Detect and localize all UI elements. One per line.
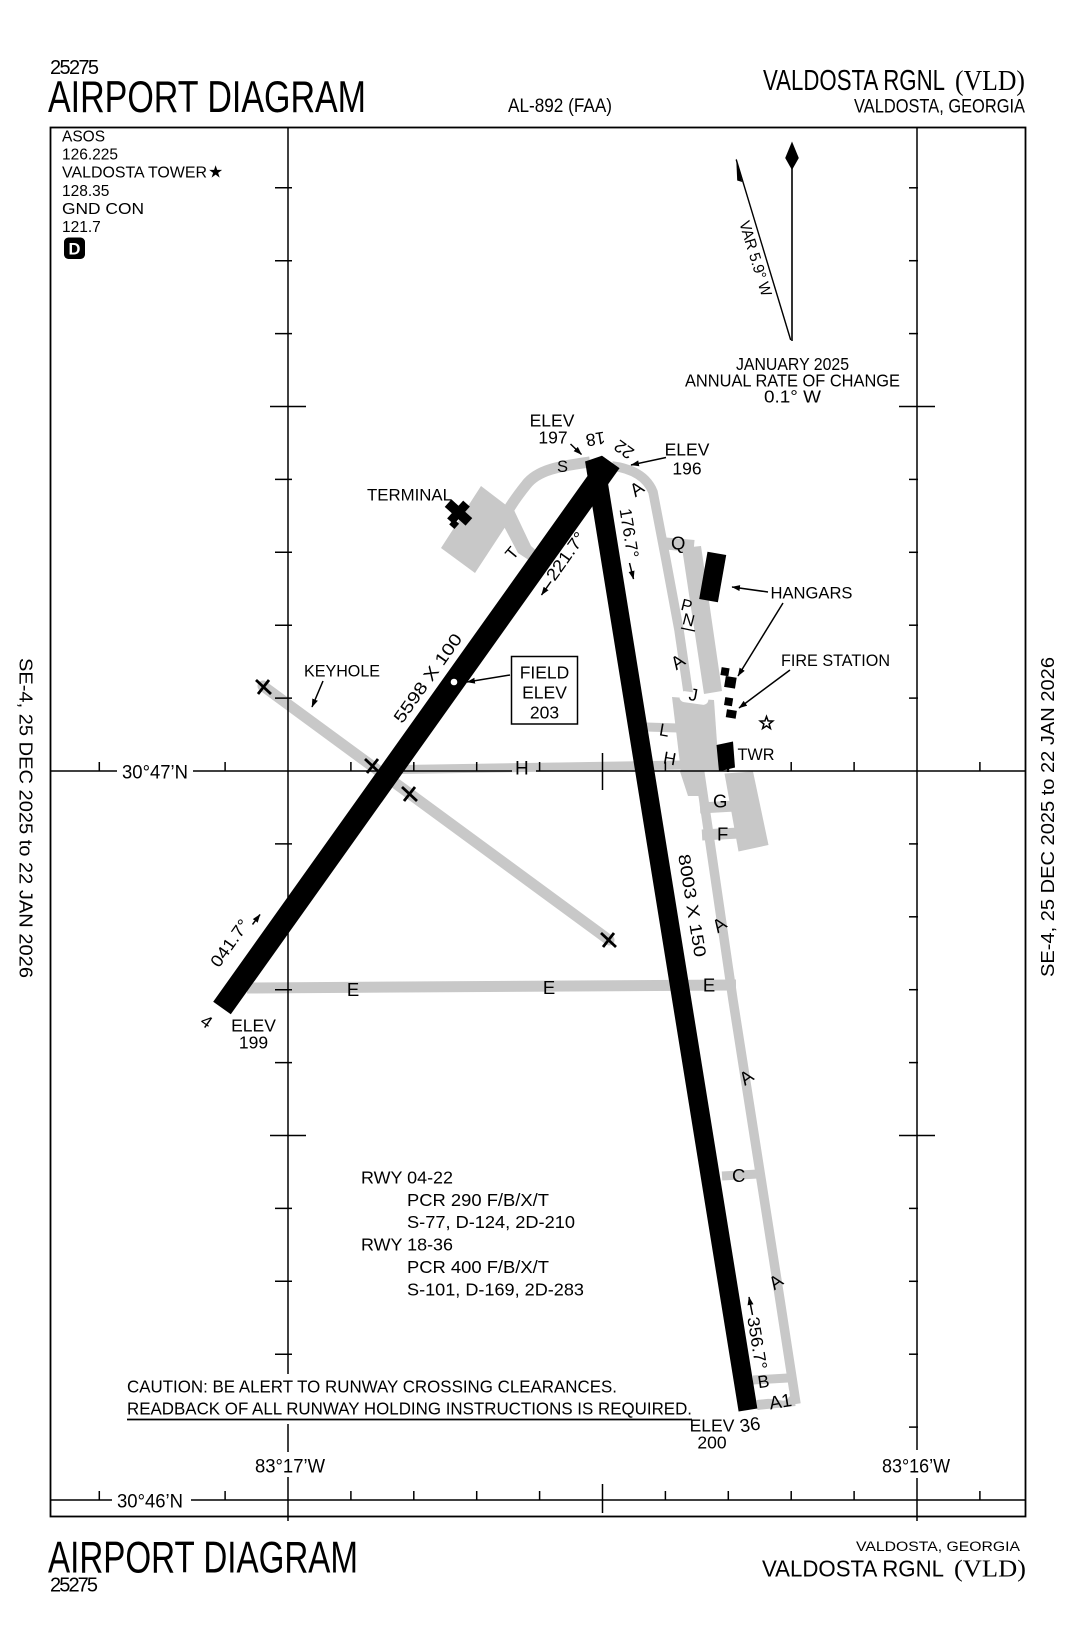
svg-text:VALDOSTA TOWER: VALDOSTA TOWER bbox=[62, 165, 207, 182]
svg-text:AL-892 (FAA): AL-892 (FAA) bbox=[508, 95, 612, 117]
svg-text:Q: Q bbox=[671, 533, 685, 554]
svg-text:F: F bbox=[717, 824, 728, 845]
svg-text:36: 36 bbox=[738, 1413, 762, 1437]
svg-text:TERMINAL: TERMINAL bbox=[367, 486, 452, 505]
svg-text:30°47’N: 30°47’N bbox=[122, 762, 188, 784]
svg-text:H: H bbox=[515, 759, 529, 780]
svg-text:G: G bbox=[713, 791, 727, 812]
svg-text:S-77, D-124, 2D-210: S-77, D-124, 2D-210 bbox=[407, 1212, 575, 1232]
svg-text:CAUTION: BE ALERT TO RUNWAY CR: CAUTION: BE ALERT TO RUNWAY CROSSING CLE… bbox=[127, 1377, 617, 1397]
svg-text:D: D bbox=[69, 241, 81, 259]
svg-text:VALDOSTA, GEORGIA: VALDOSTA, GEORGIA bbox=[856, 1539, 1020, 1554]
svg-text:FIELD: FIELD bbox=[520, 663, 570, 683]
svg-text:S-101, D-169, 2D-283: S-101, D-169, 2D-283 bbox=[407, 1279, 584, 1299]
svg-text:C: C bbox=[732, 1165, 745, 1186]
svg-text:121.7: 121.7 bbox=[62, 219, 101, 236]
svg-text:A1: A1 bbox=[768, 1389, 794, 1413]
svg-text:VALDOSTA RGNL: VALDOSTA RGNL bbox=[762, 1556, 944, 1582]
svg-text:E: E bbox=[703, 975, 715, 996]
svg-text:(VLD): (VLD) bbox=[954, 1557, 1026, 1583]
svg-text:S: S bbox=[557, 458, 568, 476]
svg-text:200: 200 bbox=[697, 1433, 726, 1453]
svg-text:SE-4, 25 DEC 2025 to 22 JAN: SE-4, 25 DEC 2025 to 22 JAN 2026 bbox=[1038, 657, 1058, 977]
svg-text:ASOS: ASOS bbox=[62, 129, 105, 146]
svg-text:E: E bbox=[543, 977, 555, 998]
svg-text:★: ★ bbox=[208, 163, 223, 182]
svg-text:PCR 400 F/B/X/T: PCR 400 F/B/X/T bbox=[407, 1257, 549, 1277]
svg-text:0.1° W: 0.1° W bbox=[764, 387, 822, 407]
svg-text:203: 203 bbox=[530, 703, 559, 723]
svg-text:SE-4, 25 DEC 2025 to 22 JAN: SE-4, 25 DEC 2025 to 22 JAN 2026 bbox=[16, 658, 36, 978]
svg-text:ELEV: ELEV bbox=[522, 683, 567, 703]
svg-text:(VLD): (VLD) bbox=[955, 65, 1025, 97]
svg-text:HANGARS: HANGARS bbox=[771, 584, 853, 603]
svg-text:VALDOSTA, GEORGIA: VALDOSTA, GEORGIA bbox=[854, 96, 1025, 118]
svg-text:ELEV: ELEV bbox=[665, 440, 710, 460]
svg-text:196: 196 bbox=[672, 459, 701, 479]
svg-text:18: 18 bbox=[584, 428, 606, 451]
svg-text:PCR 290 F/B/X/T: PCR 290 F/B/X/T bbox=[407, 1190, 549, 1210]
svg-text:83°17’W: 83°17’W bbox=[255, 1456, 326, 1478]
svg-text:TWR: TWR bbox=[738, 745, 775, 764]
svg-text:199: 199 bbox=[239, 1033, 268, 1053]
svg-text:128.35: 128.35 bbox=[62, 183, 109, 200]
svg-text:RWY 18-36: RWY 18-36 bbox=[361, 1235, 453, 1255]
svg-text:KEYHOLE: KEYHOLE bbox=[304, 662, 380, 681]
svg-text:FIRE STATION: FIRE STATION bbox=[781, 651, 890, 670]
svg-text:197: 197 bbox=[538, 428, 567, 448]
svg-text:30°46’N: 30°46’N bbox=[117, 1491, 183, 1513]
svg-text:READBACK OF ALL RUNWAY HOLDING: READBACK OF ALL RUNWAY HOLDING INSTRUCTI… bbox=[127, 1399, 692, 1419]
svg-text:83°16’W: 83°16’W bbox=[882, 1456, 951, 1478]
svg-text:E: E bbox=[347, 979, 359, 1000]
svg-text:126.225: 126.225 bbox=[62, 147, 118, 164]
svg-text:AIRPORT DIAGRAM: AIRPORT DIAGRAM bbox=[48, 73, 366, 122]
svg-text:RWY 04-22: RWY 04-22 bbox=[361, 1168, 453, 1188]
svg-text:25275: 25275 bbox=[50, 1575, 98, 1597]
svg-text:VALDOSTA RGNL: VALDOSTA RGNL bbox=[763, 65, 945, 97]
svg-text:GND CON: GND CON bbox=[62, 201, 144, 218]
